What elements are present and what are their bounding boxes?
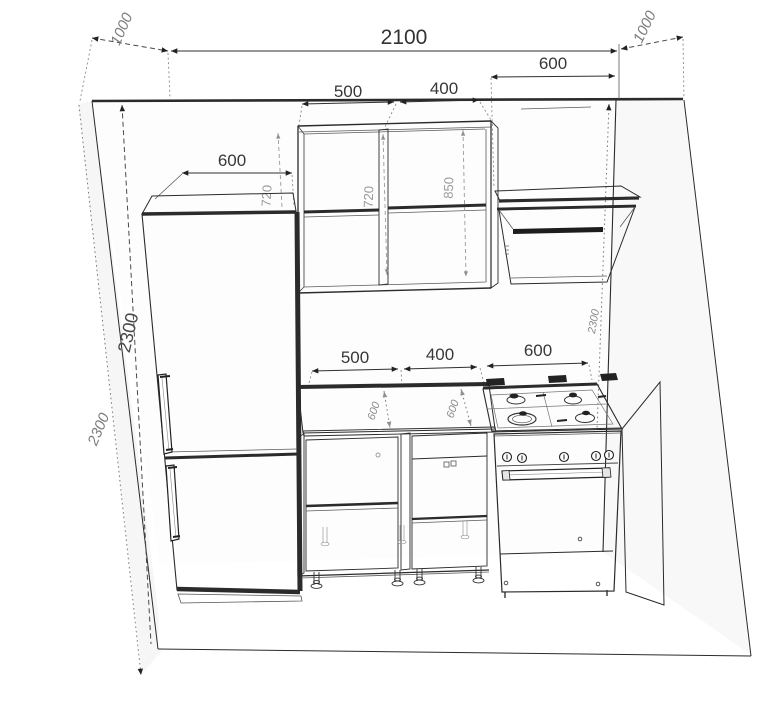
drawing-canvas: 1000 2100 1000 600 2300 2300 2300: [0, 0, 774, 706]
cooktop-back-tab: [486, 378, 505, 386]
dim-label-room-height-outer: 2300: [84, 410, 113, 449]
cooktop-back-tab: [548, 375, 567, 383]
dim-label-hood-width: 600: [539, 54, 567, 73]
dimension-room-depth-right: 1000: [621, 8, 684, 99]
cooktop-back-tab: [600, 373, 618, 381]
dim-label-room-depth-left: 1000: [107, 10, 136, 48]
dim-label-fridge-width: 600: [218, 151, 246, 170]
dim-label-720-gap: 720: [258, 185, 274, 207]
dim-label-base-cab-left: 500: [341, 348, 369, 367]
dim-label-wall-cab-right: 400: [430, 79, 458, 98]
dim-label-stove-width: 600: [524, 341, 552, 360]
dim-label-room-depth-right: 1000: [630, 8, 660, 46]
dim-label-wall-cab-height-inner: 720: [361, 186, 377, 208]
wall-cabinet-left-shelf: [304, 210, 379, 212]
dimension-room-depth-left: 1000: [80, 10, 170, 101]
dim-label-room-width: 2100: [381, 26, 428, 49]
dim-label-wall-cab-left: 500: [334, 82, 362, 101]
kitchen-elevation-drawing: 1000 2100 1000 600 2300 2300 2300: [0, 0, 774, 706]
dim-label-base-cab-right: 400: [426, 345, 454, 364]
dim-label-850: 850: [441, 177, 457, 199]
